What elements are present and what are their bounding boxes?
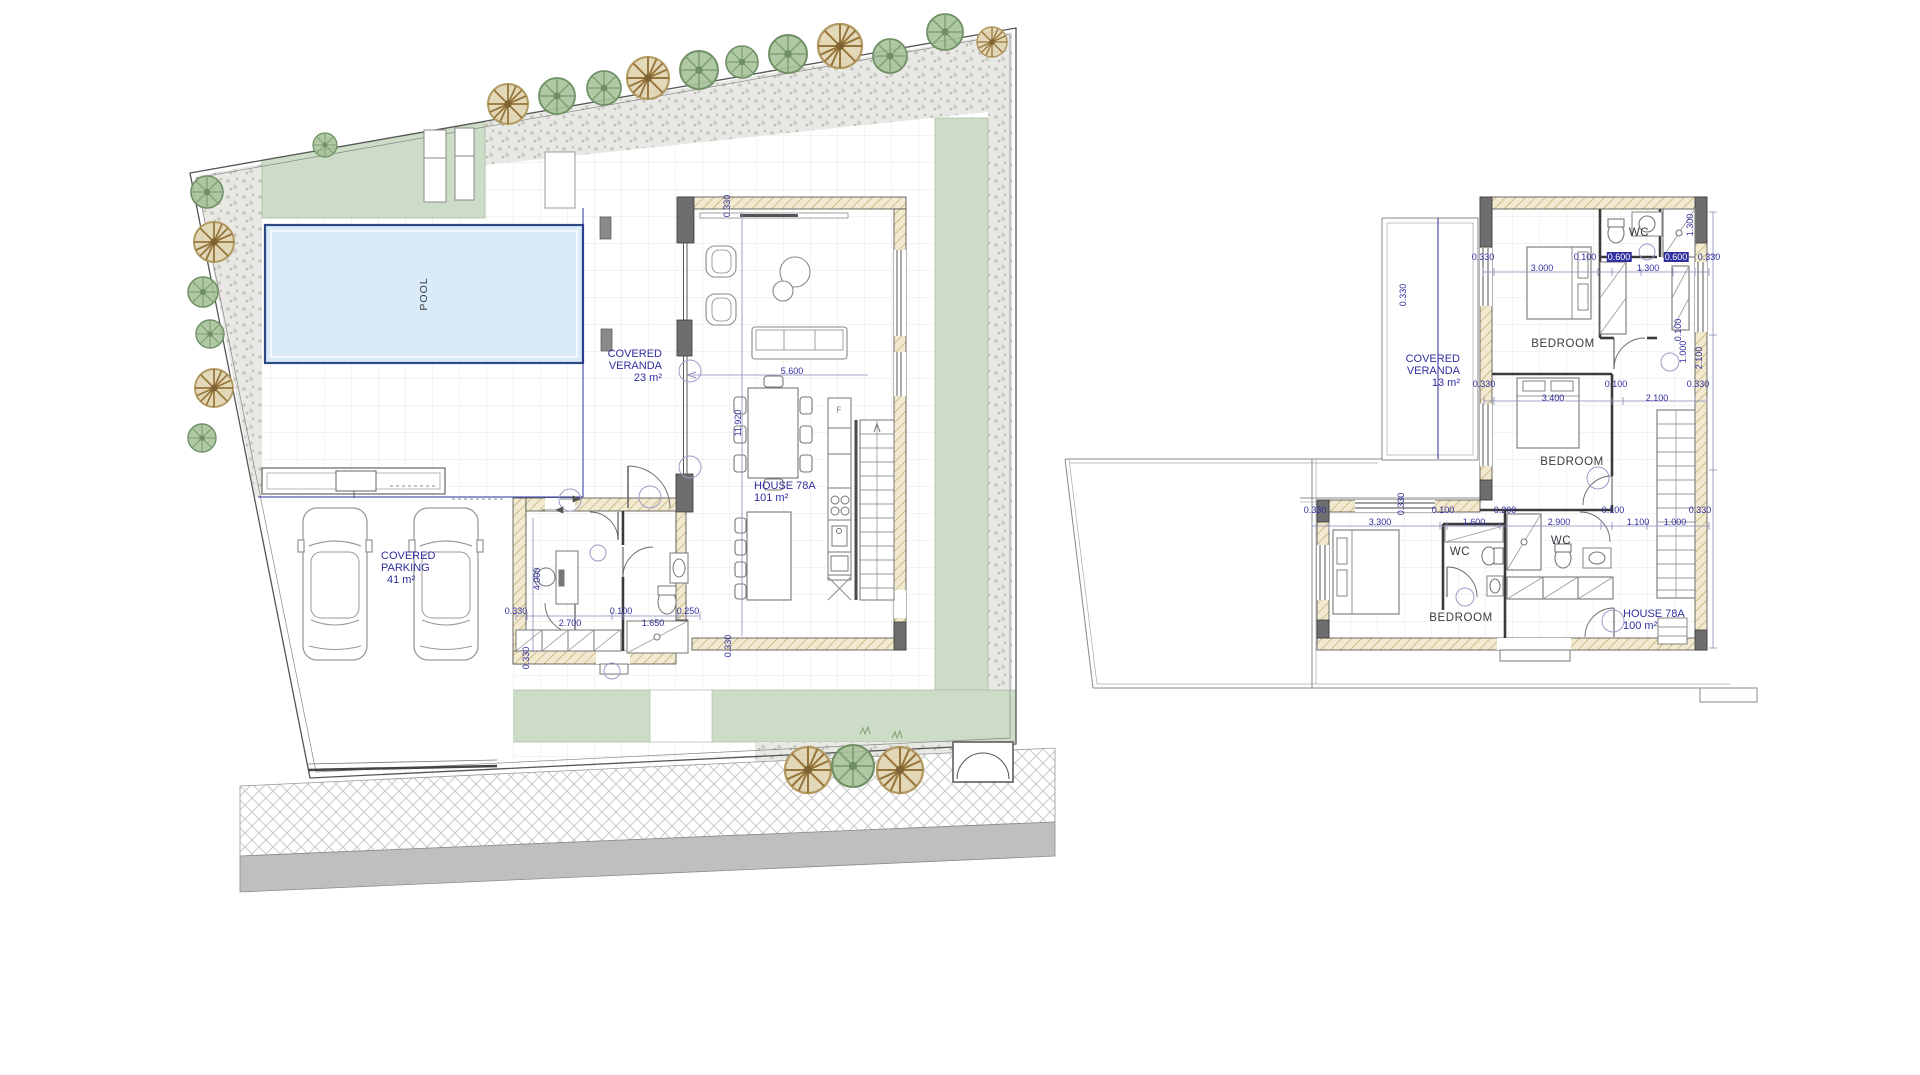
closet [516, 630, 621, 651]
dimension-label: 0.200 [1494, 505, 1517, 515]
dimension-label: 3.300 [1369, 517, 1392, 527]
veranda-pier [600, 217, 611, 239]
dimension-label: 0.330 [505, 606, 528, 616]
first-floor-veranda-label: COVERED VERANDA 13 m² [1406, 353, 1460, 389]
dimension-label: 2.900 [1548, 517, 1571, 527]
dimension-label: 2.100 [1694, 347, 1704, 370]
dimension-label: 0.330 [1396, 493, 1406, 516]
dimension-label: 0.330 [1473, 379, 1496, 389]
column [676, 474, 693, 512]
dimension-label: 0.100 [1605, 379, 1628, 389]
dimension-label: 0.330 [1689, 505, 1712, 515]
lawn-top [262, 122, 485, 218]
room-label: BEDROOM [1531, 338, 1595, 350]
column [1695, 197, 1707, 243]
dimension-label: 1.100 [1627, 517, 1650, 527]
site-plan-ground-floor [188, 14, 1055, 892]
parking-label: COVERED PARKING 41 m² [381, 550, 435, 586]
appliance-label: F [837, 406, 842, 415]
dimension-label: 0.100 [1602, 505, 1625, 515]
dimension-label: 0.250 [677, 606, 700, 616]
dimension-label: 1.600 [1463, 517, 1486, 527]
door-opening [894, 590, 906, 618]
dimension-label: 0.330 [1687, 379, 1710, 389]
pool-label: POOL [418, 277, 430, 310]
lawn-bottom [498, 690, 1016, 742]
dimension-label: 0.330 [1698, 252, 1721, 262]
walkway [650, 690, 712, 742]
dimension-label: 0.100 [1673, 319, 1683, 342]
dimension-label: 1.300 [1637, 263, 1660, 273]
dimension-label: 0.330 [521, 647, 531, 670]
garden-gate [953, 742, 1013, 782]
column [677, 320, 692, 356]
kitchen-counter [828, 398, 851, 600]
hob [831, 496, 839, 504]
dimension-label: 1.300 [1685, 214, 1695, 237]
dimension-label: 0.100 [1574, 252, 1597, 262]
staircase-upper [1657, 410, 1695, 598]
entrance-opening [1497, 638, 1571, 650]
sofa [752, 327, 847, 359]
dimension-label: 0.100 [610, 606, 633, 616]
column [677, 197, 694, 243]
dimension-label: 0.330 [1398, 284, 1408, 307]
room-label: WC [1551, 535, 1571, 547]
first-floor-house-label: HOUSE 78A 100 m² [1623, 608, 1685, 632]
carport [262, 468, 445, 498]
dimension-label: 5.600 [781, 366, 804, 376]
staircase [856, 420, 894, 600]
lawn-right [935, 118, 988, 744]
dimension-label: 2.700 [559, 618, 582, 628]
room-label: WC [1629, 227, 1649, 239]
entrance-opening [596, 651, 630, 664]
room-label: BEDROOM [1540, 456, 1604, 468]
dimension-label: 0.330 [1304, 505, 1327, 515]
room-label: WC [1450, 546, 1470, 558]
dimension-label: 0.600 [1664, 252, 1689, 262]
dimension-label: 1.650 [642, 618, 665, 628]
car [298, 508, 372, 660]
oven [831, 556, 848, 571]
dimension-label: 1.000 [1664, 517, 1687, 527]
dimension-label: 0.100 [1432, 505, 1455, 515]
dimension-label: 0.330 [1472, 252, 1495, 262]
ground-house-label: HOUSE 78A 101 m² [754, 480, 816, 504]
plan-drawing [0, 0, 1920, 1075]
column [1480, 197, 1492, 247]
dimension-label: 1.000 [1678, 341, 1688, 364]
room-label: BEDROOM [1429, 612, 1493, 624]
dimension-label: 0.600 [1607, 252, 1632, 262]
dimension-label: 2.100 [1646, 393, 1669, 403]
dimension-label: 0.330 [722, 195, 732, 218]
dimension-label: 3.400 [1542, 393, 1565, 403]
dimension-label: 11.920 [733, 410, 743, 437]
floor-plan-canvas: POOL COVERED VERANDA 23 m² HOUSE 78A 101… [0, 0, 1920, 1075]
dimension-label: 4.000 [532, 568, 542, 591]
dimension-label: 0.330 [723, 635, 733, 658]
bed-middle [1517, 378, 1579, 448]
pool-deck [545, 152, 575, 208]
side-table [773, 281, 793, 301]
bed-bottom [1333, 530, 1399, 614]
ground-veranda-label: COVERED VERANDA 23 m² [608, 348, 662, 384]
dimension-label: 3.000 [1531, 263, 1554, 273]
entry-step [1500, 650, 1570, 661]
